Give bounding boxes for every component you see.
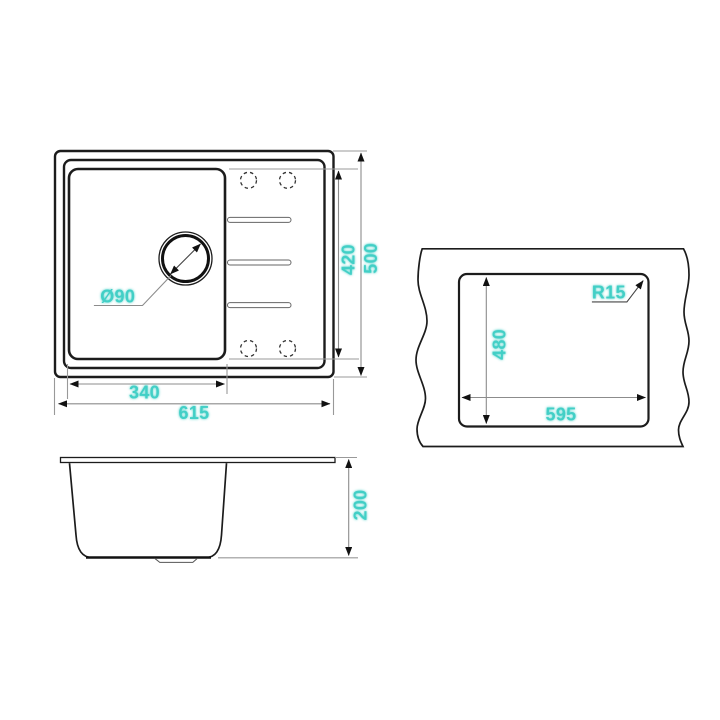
svg-text:480: 480 [490, 329, 510, 360]
svg-text:500: 500 [361, 243, 381, 274]
svg-text:615: 615 [179, 403, 210, 423]
svg-text:R15: R15 [592, 283, 626, 303]
svg-text:Ø90: Ø90 [100, 286, 135, 306]
svg-text:420: 420 [339, 244, 359, 275]
svg-text:200: 200 [351, 490, 371, 521]
svg-text:340: 340 [129, 383, 160, 403]
svg-text:595: 595 [546, 405, 577, 425]
